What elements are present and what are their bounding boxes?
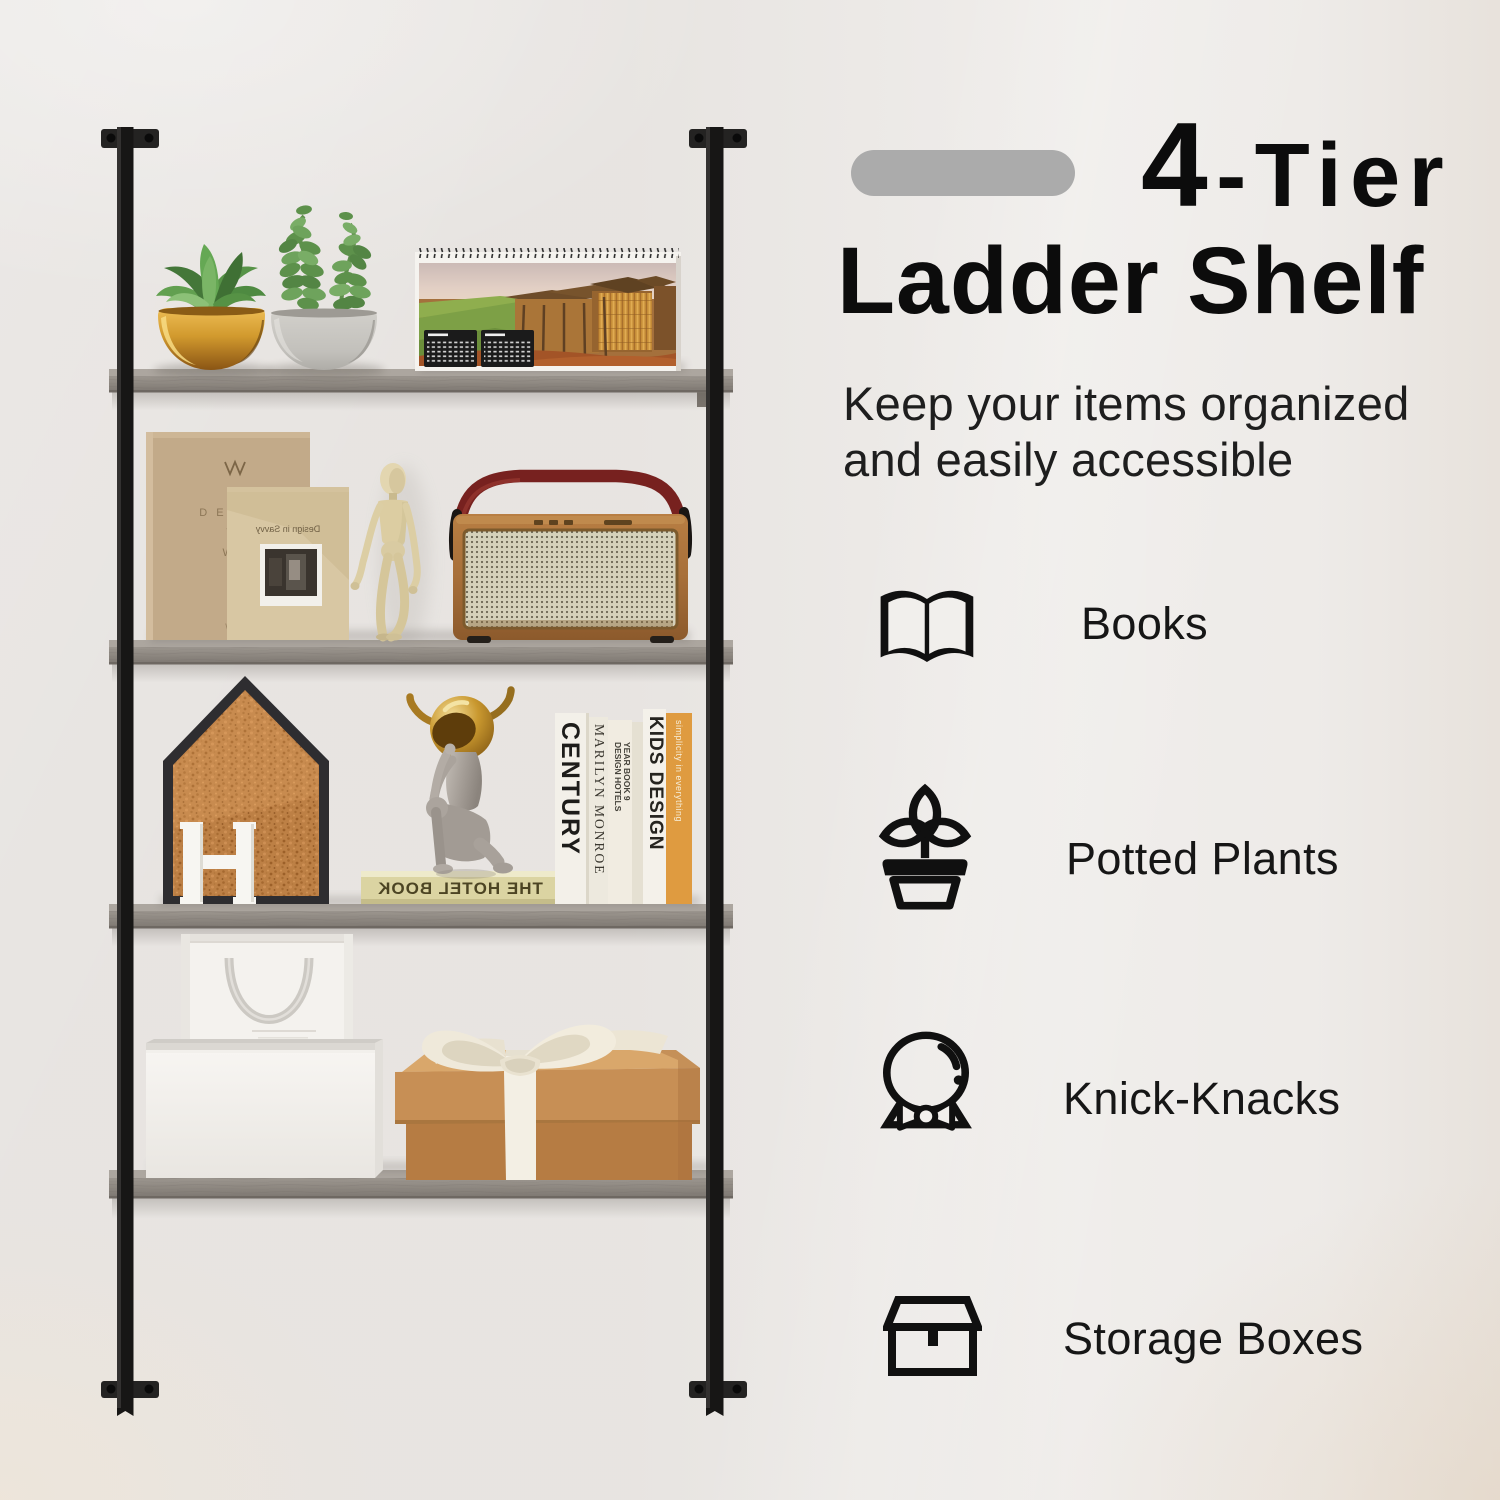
svg-text:simplicity in everything: simplicity in everything <box>674 720 684 822</box>
svg-text:MARILYN MONROE: MARILYN MONROE <box>592 724 607 876</box>
svg-text:YEAR BOOK 9: YEAR BOOK 9 <box>622 742 632 801</box>
svg-text:CENTURY: CENTURY <box>556 722 584 856</box>
svg-text:Design in Savvy: Design in Savvy <box>255 524 320 534</box>
svg-text:DESIGN HOTELS: DESIGN HOTELS <box>613 742 623 812</box>
svg-text:KIDS DESIGN: KIDS DESIGN <box>645 716 666 851</box>
svg-text:THE HOTEL BOOK: THE HOTEL BOOK <box>377 879 543 898</box>
